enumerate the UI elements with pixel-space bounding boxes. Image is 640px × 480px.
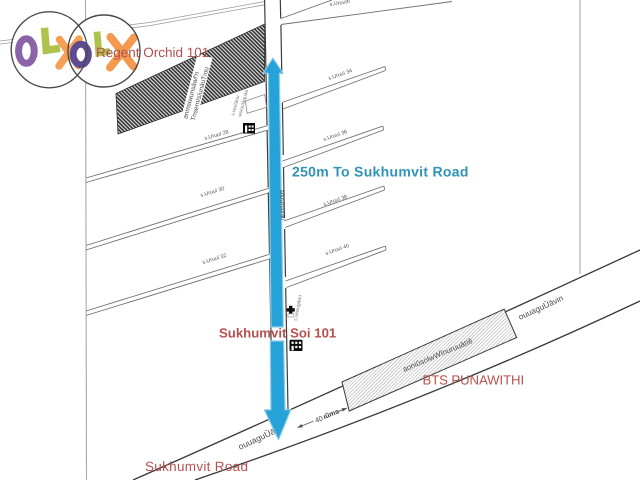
- svg-text:Sukhumvit Road: Sukhumvit Road: [145, 459, 248, 474]
- svg-text:Sukhumvit Soi 101: Sukhumvit Soi 101: [219, 326, 336, 341]
- svg-text:BTS PUNAWITHI: BTS PUNAWITHI: [423, 373, 525, 388]
- svg-text:souUruurāti: souUruurāti: [278, 190, 286, 220]
- svg-text:250m To Sukhumvit Road: 250m To Sukhumvit Road: [292, 164, 469, 180]
- svg-text:Regent Orchid 101: Regent Orchid 101: [96, 45, 209, 60]
